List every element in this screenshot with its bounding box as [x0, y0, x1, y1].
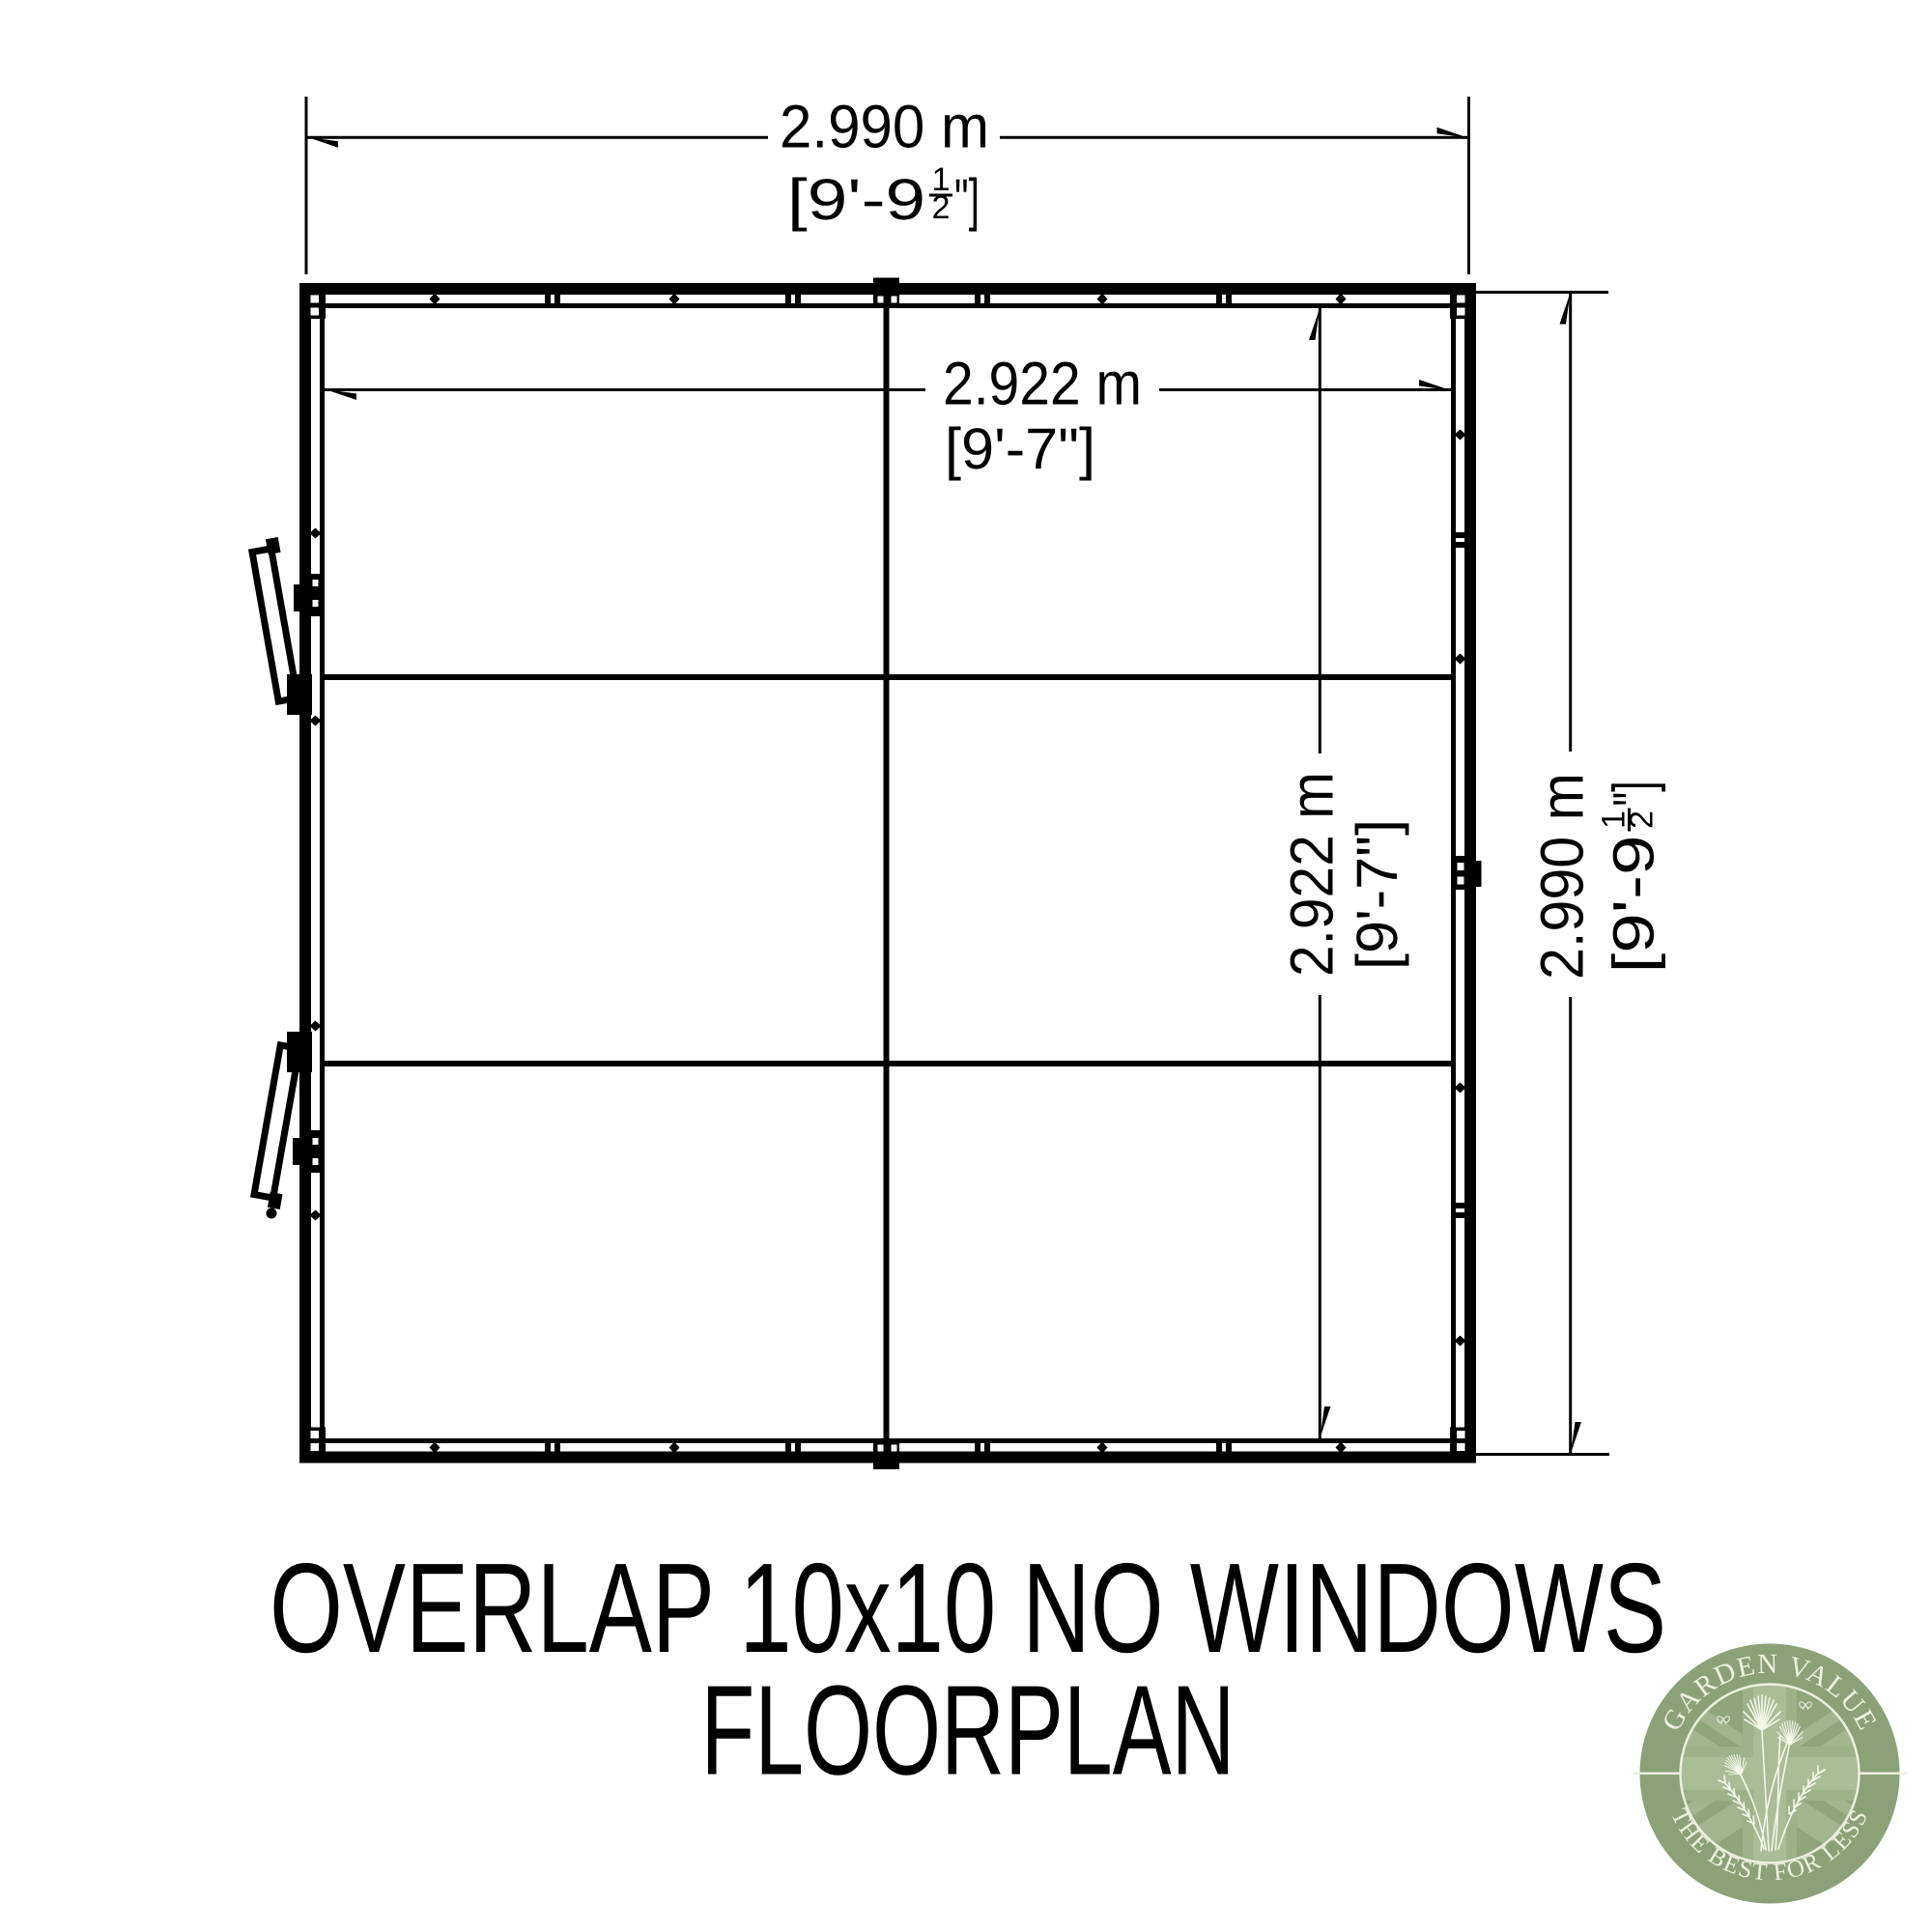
svg-text:2.990 m: 2.990 m	[780, 94, 989, 161]
svg-text:[9'-7"]: [9'-7"]	[945, 416, 1095, 481]
svg-text:[9'-7"]: [9'-7"]	[1345, 819, 1409, 970]
svg-text:OVERLAP 10x10 NO WINDOWS: OVERLAP 10x10 NO WINDOWS	[270, 1537, 1666, 1679]
svg-text:2.922 m: 2.922 m	[1278, 772, 1346, 977]
svg-text:FLOORPLAN: FLOORPLAN	[701, 1660, 1236, 1802]
svg-text:2.922 m: 2.922 m	[943, 351, 1142, 418]
svg-text:2.990 m: 2.990 m	[1528, 773, 1596, 980]
